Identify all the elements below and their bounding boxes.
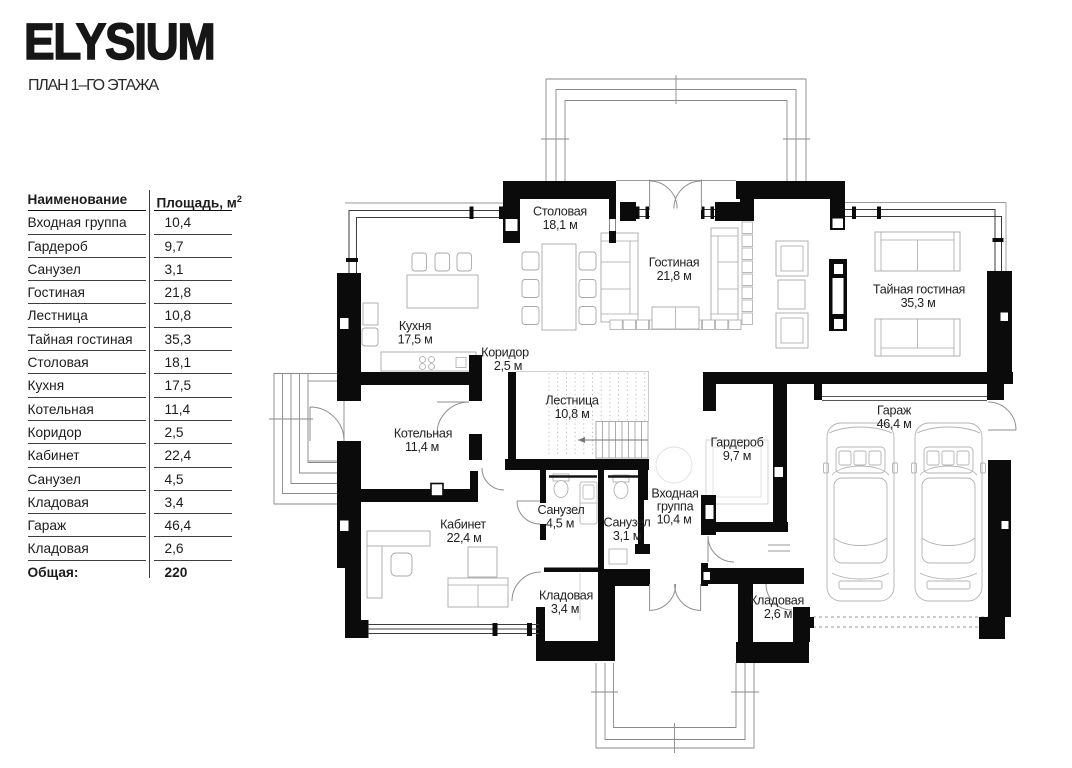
svg-text:35,3 м: 35,3 м (901, 296, 936, 310)
svg-text:Коридор: Коридор (481, 346, 529, 360)
svg-text:Лестница: Лестница (545, 394, 598, 408)
svg-text:22,4 м: 22,4 м (447, 531, 482, 545)
svg-text:Тайная гостиная: Тайная гостиная (873, 283, 965, 297)
svg-text:3,4 м: 3,4 м (551, 602, 579, 616)
svg-text:Кладовая: Кладовая (750, 594, 804, 608)
svg-text:17,5 м: 17,5 м (398, 333, 433, 347)
svg-text:группа: группа (657, 500, 694, 514)
svg-text:Гостиная: Гостиная (649, 256, 699, 270)
svg-text:9,7 м: 9,7 м (723, 449, 751, 463)
svg-text:Кухня: Кухня (399, 319, 431, 333)
svg-text:Гардероб: Гардероб (710, 436, 763, 450)
svg-text:4,5 м: 4,5 м (546, 517, 574, 531)
svg-text:2,5 м: 2,5 м (494, 359, 522, 373)
svg-text:Кабинет: Кабинет (440, 518, 486, 532)
svg-text:Входная: Входная (651, 487, 698, 501)
svg-text:3,1 м: 3,1 м (613, 529, 641, 543)
svg-text:Котельная: Котельная (394, 427, 452, 441)
svg-text:Санузел: Санузел (604, 516, 651, 530)
svg-text:18,1 м: 18,1 м (543, 218, 578, 232)
svg-text:Столовая: Столовая (533, 205, 587, 219)
svg-text:10,4 м: 10,4 м (657, 513, 692, 527)
svg-text:11,4 м: 11,4 м (405, 440, 439, 454)
svg-text:10,8 м: 10,8 м (555, 407, 590, 421)
svg-text:Гараж: Гараж (877, 404, 912, 418)
svg-text:2,6 м: 2,6 м (764, 607, 792, 621)
svg-text:21,8 м: 21,8 м (657, 269, 692, 283)
svg-text:Кладовая: Кладовая (539, 589, 593, 603)
svg-text:46,4 м: 46,4 м (877, 417, 912, 431)
svg-text:Санузел: Санузел (538, 503, 585, 517)
